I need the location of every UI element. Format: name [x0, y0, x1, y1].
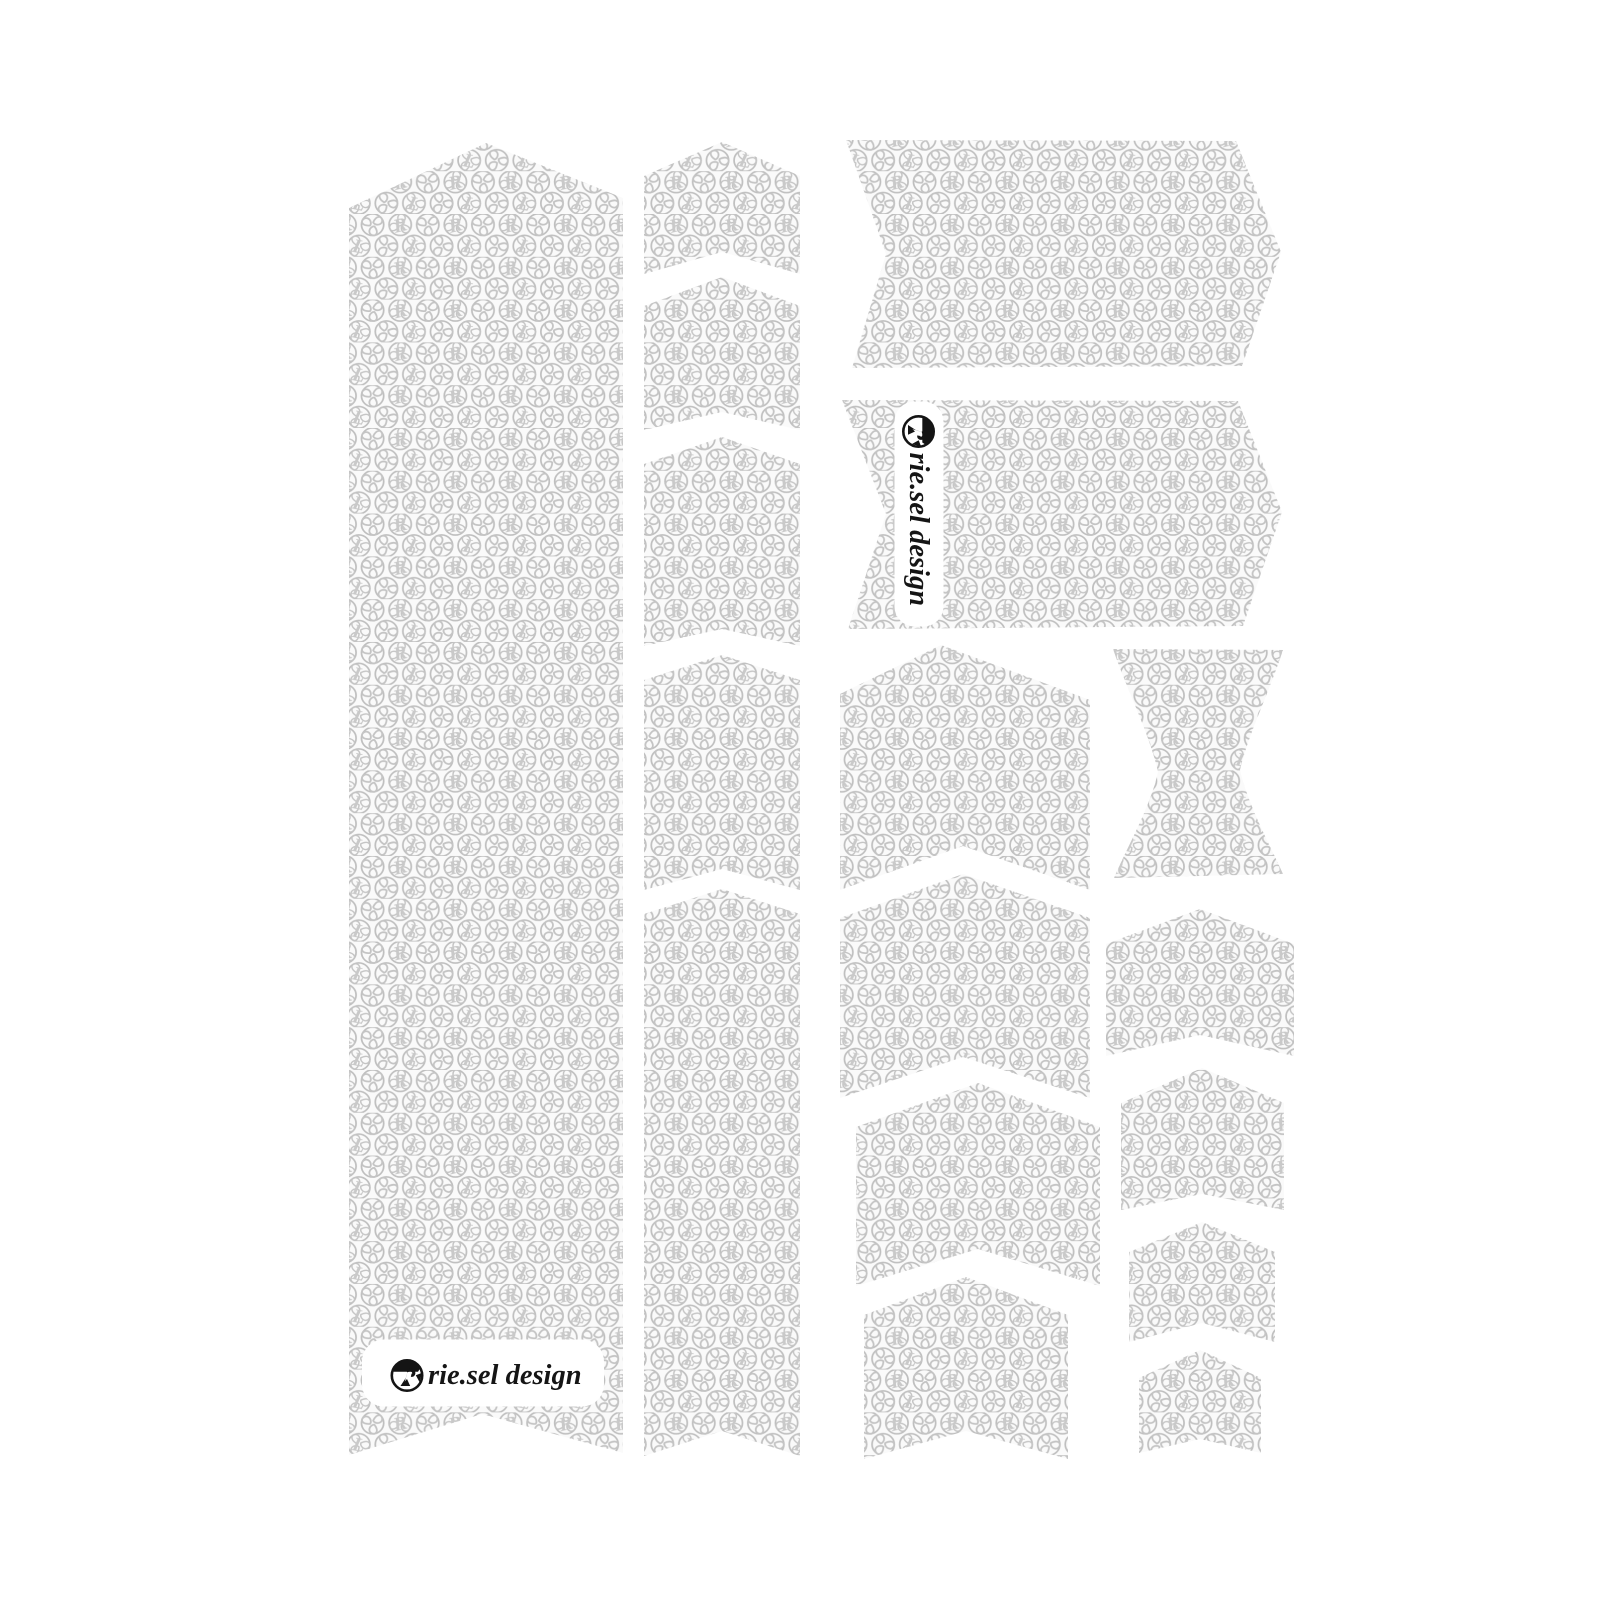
- svg-text:rie.sel design: rie.sel design: [428, 1360, 582, 1391]
- svg-text:rie.sel design: rie.sel design: [903, 453, 934, 607]
